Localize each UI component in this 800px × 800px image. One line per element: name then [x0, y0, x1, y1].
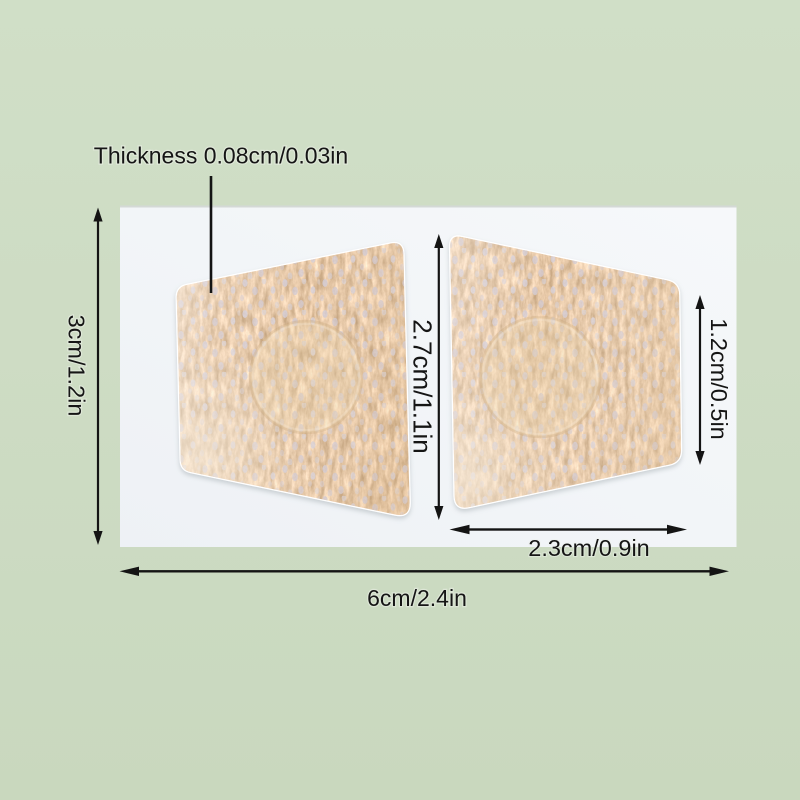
svg-text:2.3cm/0.9in: 2.3cm/0.9in — [528, 535, 649, 561]
svg-text:1.2cm/0.5in: 1.2cm/0.5in — [706, 318, 732, 439]
svg-text:2.7cm/1.1in: 2.7cm/1.1in — [408, 319, 438, 453]
svg-text:3cm/1.2in: 3cm/1.2in — [63, 315, 89, 417]
svg-text:6cm/2.4in: 6cm/2.4in — [367, 585, 467, 611]
svg-text:Thickness 0.08cm/0.03in: Thickness 0.08cm/0.03in — [94, 143, 348, 169]
